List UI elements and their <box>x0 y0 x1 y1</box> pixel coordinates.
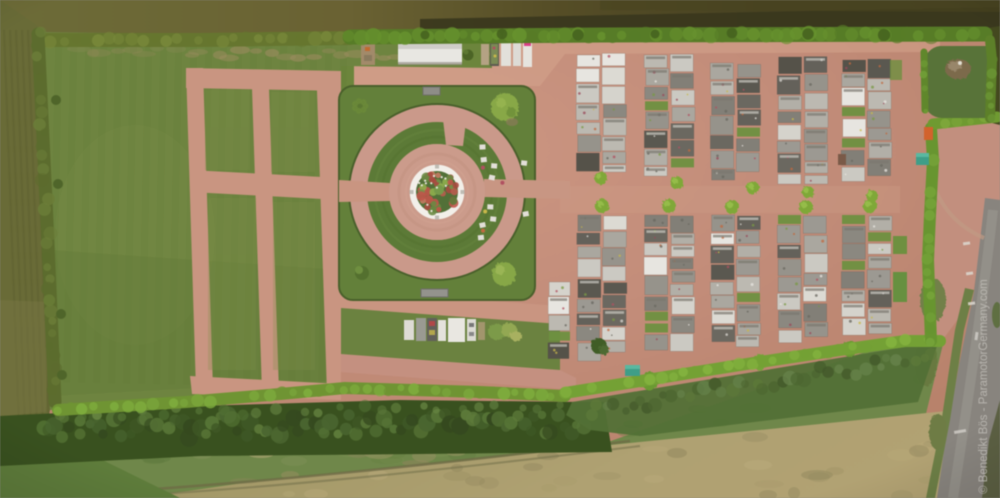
svg-text:© Benedikt Bös - ParamotorGerm: © Benedikt Bös - ParamotorGermany.com <box>978 279 990 494</box>
